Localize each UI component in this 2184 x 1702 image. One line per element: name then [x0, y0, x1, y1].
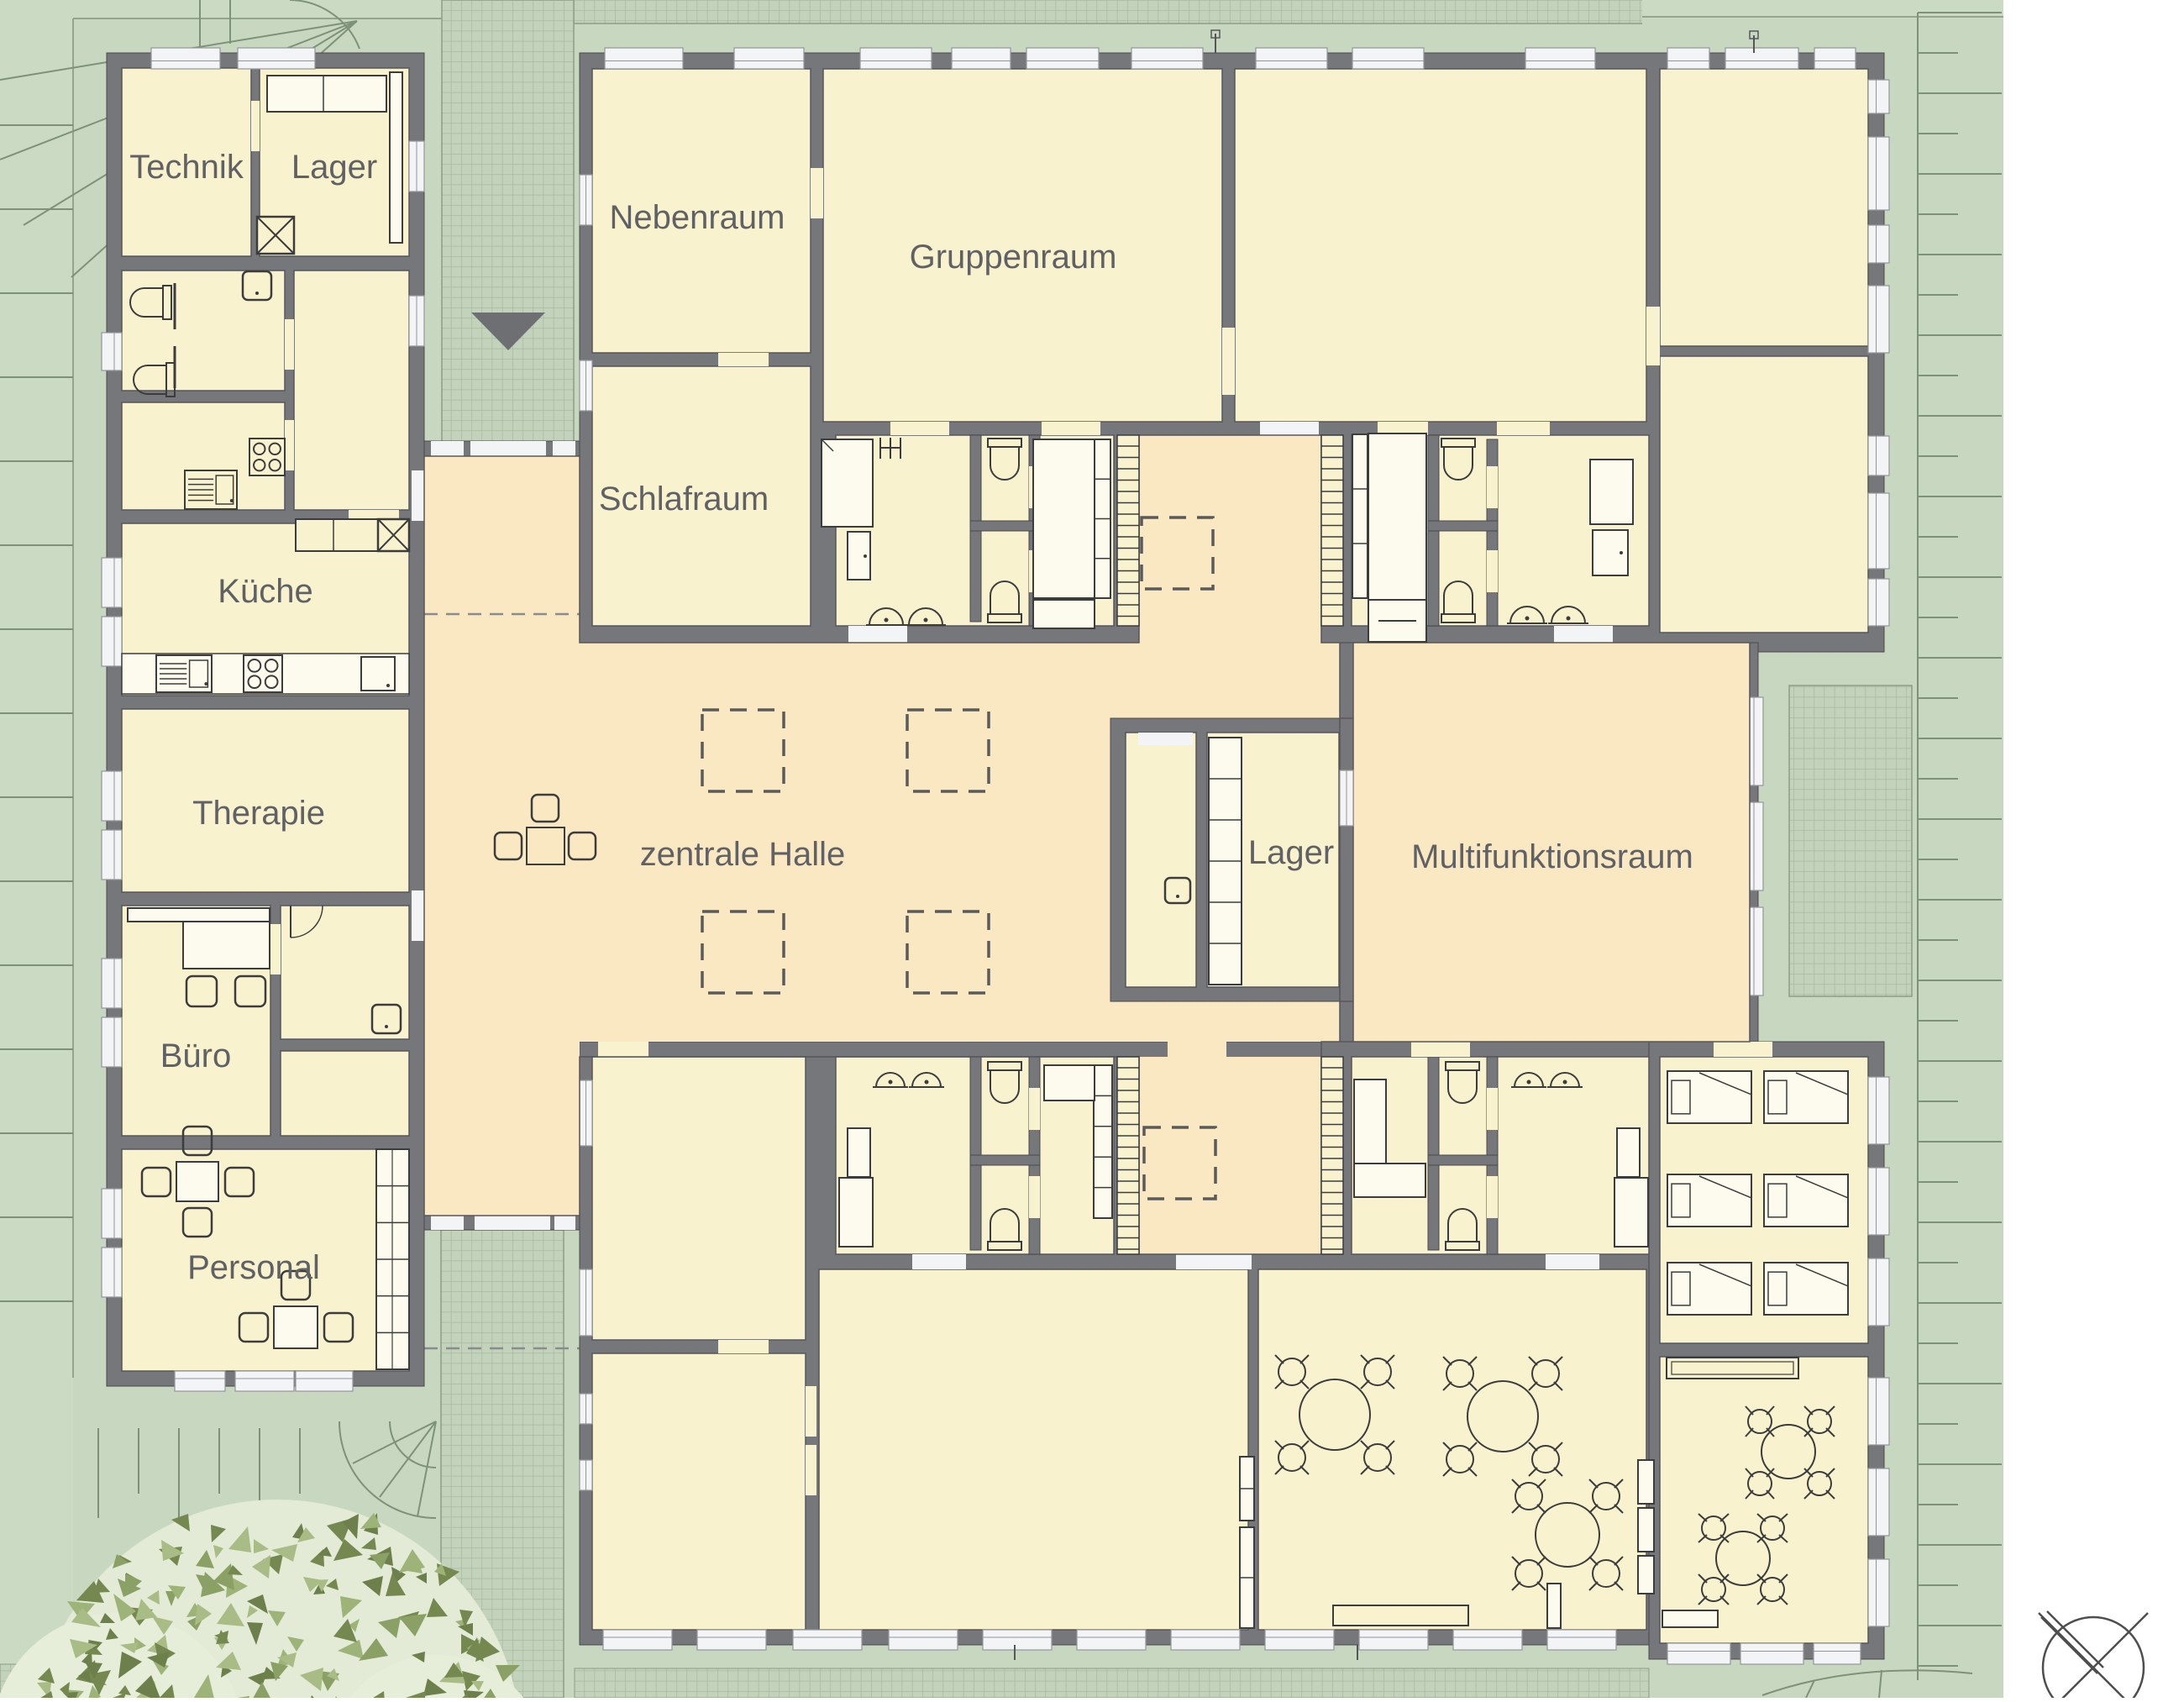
svg-text:Personal: Personal: [187, 1249, 320, 1286]
svg-text:Gruppenraum: Gruppenraum: [910, 239, 1117, 276]
svg-text:Büro: Büro: [160, 1037, 232, 1074]
svg-text:Lager: Lager: [291, 149, 377, 186]
svg-text:Technik: Technik: [129, 149, 244, 186]
svg-text:Therapie: Therapie: [192, 795, 325, 832]
svg-text:Lager: Lager: [1248, 834, 1334, 871]
svg-text:zentrale Halle: zentrale Halle: [640, 836, 846, 873]
svg-text:Multifunktionsraum: Multifunktionsraum: [1411, 838, 1693, 875]
svg-text:Küche: Küche: [218, 573, 312, 610]
svg-text:Nebenraum: Nebenraum: [609, 199, 785, 236]
svg-text:Schlafraum: Schlafraum: [599, 481, 769, 517]
